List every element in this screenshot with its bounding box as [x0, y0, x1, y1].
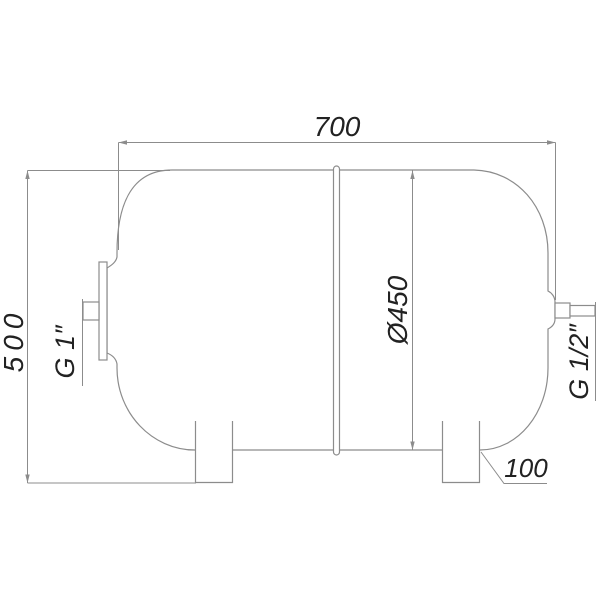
leg-offset-label: 100 [504, 453, 548, 483]
length-label: 700 [314, 111, 361, 142]
tank-drawing-svg: 700 500 Ø450 100 G 1″ [0, 0, 600, 600]
right-port-nipple-base [555, 303, 570, 318]
right-port-thread-label: G 1/2″ [564, 323, 594, 400]
dimension-leg-offset-100: 100 [481, 452, 548, 484]
right-port-nipple-thread [570, 306, 595, 317]
weld-seam-band [334, 166, 340, 455]
left-leg [196, 421, 233, 483]
left-flange [99, 262, 107, 360]
technical-drawing-canvas: 700 500 Ø450 100 G 1″ [0, 0, 600, 600]
diameter-label: Ø450 [382, 275, 413, 345]
left-port-thread-label: G 1″ [50, 324, 80, 379]
left-port-nipple [83, 302, 99, 320]
height-label: 500 [0, 308, 29, 373]
right-leg [443, 421, 480, 483]
left-port-thread-callout: G 1″ [50, 299, 83, 386]
tank-body-outline [107, 170, 555, 450]
